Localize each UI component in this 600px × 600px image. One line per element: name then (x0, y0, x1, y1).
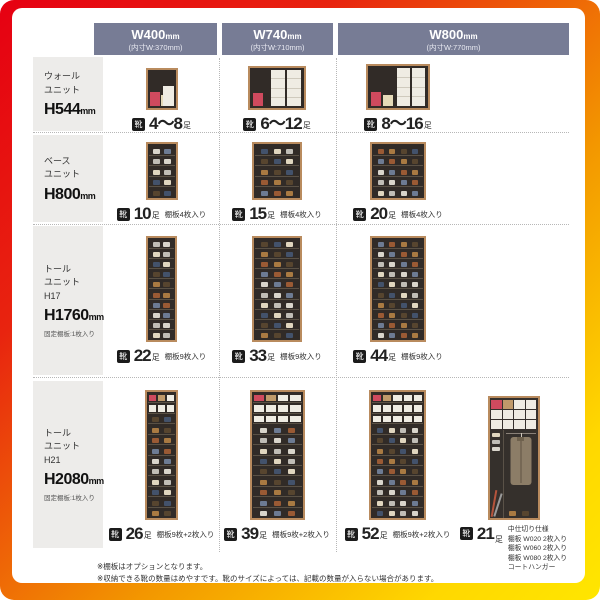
cabinet-image (252, 226, 302, 342)
shoe-pair (153, 282, 160, 287)
shelf-note: 棚板4枚入り (280, 209, 322, 220)
cabinet-wardrobe-unit (488, 396, 540, 520)
shoe-pair (401, 252, 407, 257)
shoe-pair (389, 262, 395, 267)
shoe-pair (389, 449, 395, 454)
shoe-pair (163, 303, 170, 308)
capacity-label: 靴20足棚板4枚入り (353, 205, 443, 222)
capacity-label: 靴39足棚板9枚+2枚入り (224, 525, 330, 542)
wardrobe-main (490, 430, 538, 518)
shoe-pair (163, 252, 170, 257)
capacity-unit: 足 (183, 120, 191, 131)
cabinet-shelf-unit (146, 236, 177, 342)
shoe-pair (412, 282, 418, 287)
shelf-row (148, 497, 175, 507)
shoe-pair (378, 293, 384, 298)
shoe-pair (261, 170, 268, 175)
shoe-box-stack (270, 70, 302, 106)
cabinet-shelf-unit (250, 390, 305, 520)
shoe-pair (288, 449, 295, 454)
shoe-pair (400, 438, 406, 443)
shoe-pair (389, 480, 395, 485)
shoe-pair (389, 313, 395, 318)
shoe-box (412, 88, 425, 98)
shoe-pair (389, 459, 395, 464)
shoe-pair (261, 242, 268, 247)
shoe-pair (274, 469, 281, 474)
capacity-label: 靴4〜8足 (132, 115, 191, 132)
shoe-pair (274, 159, 281, 164)
shelf-note: 棚板9枚+2枚入り (393, 529, 451, 540)
product-comparison-table: ※棚板はオプションとなります。 ※収納できる靴の数量はめやすです。靴のサイズによ… (12, 8, 585, 583)
shoe-pair (286, 191, 293, 196)
shoe-pair (378, 262, 384, 267)
shoe-pair (152, 469, 159, 474)
shoe-pair (153, 262, 160, 267)
shoe-pair (286, 323, 293, 328)
shoe-pair (152, 480, 159, 485)
shoe-pair (412, 159, 418, 164)
shelf-row (253, 403, 302, 413)
shelf-row (149, 259, 174, 269)
shoe-pair (401, 282, 407, 287)
shoe-pair (274, 242, 281, 247)
shoe-box (526, 410, 537, 419)
column-size-line: W400mm (94, 26, 217, 44)
shoe-box (266, 395, 276, 401)
capacity-count: 44 (370, 347, 387, 364)
shoe-pair (378, 313, 384, 318)
shoe-pair (412, 480, 418, 485)
shoe-pair (288, 480, 295, 485)
shoe-pair (412, 180, 418, 185)
shoe-pair (274, 428, 281, 433)
shoe-pair (153, 242, 160, 247)
shoe-pair (274, 333, 281, 338)
shelf-row (253, 497, 302, 507)
shoe-pair (153, 333, 160, 338)
shoe-pair (401, 149, 407, 154)
shoe-icon: 靴 (117, 350, 130, 363)
shoe-pair (152, 438, 159, 443)
shoe-pair (274, 272, 281, 277)
column-size: W400 (131, 27, 165, 42)
shelf-row (148, 435, 175, 445)
shoe-icon: 靴 (132, 118, 145, 131)
shoe-pair (401, 191, 407, 196)
shoe-pair (401, 323, 407, 328)
spec-note-line: 棚板 W080 2枚入り (508, 554, 567, 564)
unit-height-value: H544 (44, 101, 80, 118)
cabinet-image (146, 135, 178, 200)
stored-box (253, 93, 263, 106)
shoe-box (254, 416, 264, 422)
product-cell: 靴6〜12足 (220, 57, 334, 132)
cabinet-shelf-unit (146, 142, 178, 200)
shelf-row (149, 145, 175, 156)
product-cell: 靴22足棚板9枚入り (103, 226, 220, 364)
shoe-pair (274, 511, 281, 516)
product-cell: 靴10足棚板4枚入り (103, 135, 220, 222)
shoe-icon: 靴 (345, 528, 358, 541)
hanging-coat (510, 437, 531, 485)
shoe-box-column (412, 68, 425, 106)
shoe-pair (274, 252, 281, 257)
shoe-pair (377, 490, 383, 495)
shoe-pair (377, 438, 383, 443)
shoe-pair (389, 282, 395, 287)
shoe-pair (163, 313, 170, 318)
shoe-pair (378, 170, 384, 175)
shoe-pair (261, 333, 268, 338)
stored-box (163, 86, 174, 106)
shelf-row (255, 177, 299, 188)
shoe-box-row (491, 399, 537, 409)
shoe-pair (389, 159, 395, 164)
side-shoe-strip (490, 430, 504, 518)
shelf-note: 棚板9枚+2枚入り (157, 529, 215, 540)
shoe-pair (153, 293, 160, 298)
closet-area (504, 430, 538, 518)
shelf-row (373, 166, 423, 177)
shoe-pair (412, 303, 418, 308)
shelf-row (148, 445, 175, 455)
shoe-pair (164, 501, 171, 506)
shoe-pair (286, 262, 293, 267)
shelf-row (373, 249, 423, 259)
shoe-pair (286, 293, 293, 298)
unit-type-label: ユニット (44, 168, 103, 182)
shoe-pair (401, 303, 407, 308)
column-size: W800 (429, 27, 463, 42)
shoe-box-row (491, 419, 537, 429)
shelf-row (372, 445, 423, 455)
shelf-row (373, 289, 423, 299)
shoe-pair (153, 252, 160, 257)
shoe-pair (286, 149, 293, 154)
shelf-row (149, 249, 174, 259)
shoe-pair (401, 272, 407, 277)
capacity-count: 10 (134, 205, 151, 222)
fixed-shelf-note: 固定棚板:1枚入り (44, 328, 103, 338)
shoe-box (383, 405, 391, 411)
shelf-row (255, 249, 299, 259)
shelf-row (148, 476, 175, 486)
unit-height: H544mm (44, 102, 103, 118)
shoe-icon: 靴 (109, 528, 122, 541)
shelf-row (372, 466, 423, 476)
shoe-pair (164, 170, 171, 175)
capacity-label: 靴21足中仕切り仕様棚板 W020 2枚入り棚板 W060 2枚入り棚板 W08… (460, 525, 567, 573)
shoe-pair (389, 501, 395, 506)
shoe-box (414, 405, 422, 411)
shoe-pair (389, 469, 395, 474)
shoe-box (278, 405, 288, 411)
shoe-pair (401, 159, 407, 164)
shoe-box (503, 400, 514, 409)
shelf-note: 棚板4枚入り (401, 209, 443, 220)
shoe-pair (163, 293, 170, 298)
shoe-pair (401, 180, 407, 185)
shoe-icon: 靴 (353, 208, 366, 221)
stored-box (383, 95, 393, 106)
shoe-box-column (271, 70, 285, 106)
shoe-pair (153, 272, 160, 277)
shoe-pair (274, 170, 281, 175)
cabinet-shelf-unit (370, 236, 426, 342)
umbrella-icon (491, 488, 501, 518)
shoe-pair (412, 428, 418, 433)
shelf-row (255, 156, 299, 167)
shoe-icon: 靴 (117, 208, 130, 221)
shoe-pair (377, 428, 383, 433)
shoe-pair (164, 438, 171, 443)
shoe-box (514, 400, 525, 409)
shoe-pair (389, 252, 395, 257)
shelf-row (255, 269, 299, 279)
column-size-line: W740mm (222, 26, 333, 44)
unit-height-unit: mm (89, 476, 104, 486)
unit-height-value: H800 (44, 186, 80, 203)
cabinet-wall-unit (146, 68, 178, 110)
shoe-box (287, 89, 301, 98)
shoe-pair (274, 303, 281, 308)
shoe-box (254, 405, 264, 411)
shoe-pair (389, 170, 395, 175)
capacity-unit: 足 (424, 120, 432, 131)
column-size-line: W800mm (338, 26, 569, 44)
capacity-count: 4〜8 (149, 115, 182, 132)
shoe-pair (412, 242, 418, 247)
shoe-pair (522, 511, 529, 516)
shelf-row (373, 269, 423, 279)
shoe-pair (163, 262, 170, 267)
capacity-label: 靴15足棚板4枚入り (232, 205, 322, 222)
shoe-pair (260, 449, 267, 454)
cabinet-shelf-unit (369, 390, 426, 520)
shelf-row (372, 424, 423, 434)
shoe-icon: 靴 (243, 118, 256, 131)
shoe-box (373, 416, 381, 422)
product-cell: 靴33足棚板9枚入り (220, 226, 334, 364)
product-cell: 靴4〜8足 (103, 57, 220, 132)
shoe-box (278, 395, 288, 401)
shoe-pair (261, 262, 268, 267)
row-divider (33, 224, 569, 225)
shoe-box-column (287, 70, 301, 106)
shelf-row (255, 320, 299, 330)
shoe-pair (389, 272, 395, 277)
shoe-pair (389, 333, 395, 338)
shoe-pair (260, 511, 267, 516)
cabinet-image (488, 381, 540, 520)
stored-box (150, 92, 160, 106)
shoe-pair (274, 293, 281, 298)
capacity-count: 33 (249, 347, 266, 364)
unit-type-label: H21 (44, 454, 103, 468)
shoe-pair (164, 480, 171, 485)
shelf-row (253, 508, 302, 517)
shoe-pair (492, 440, 500, 444)
cabinet-image (146, 226, 177, 342)
unit-type-label: ウォール (44, 70, 103, 84)
shoe-box (149, 405, 156, 411)
shoe-pair (153, 159, 160, 164)
shoe-box (278, 416, 288, 422)
shelf-row (255, 239, 299, 249)
shoe-pair (378, 159, 384, 164)
shelf-row (253, 414, 302, 424)
shoe-pair (286, 242, 293, 247)
shelf-row (149, 300, 174, 310)
shoe-pair (389, 293, 395, 298)
capacity-unit: 足 (380, 530, 388, 541)
cabinet-image (250, 381, 305, 520)
shoe-pair (260, 480, 267, 485)
shoe-pair (153, 303, 160, 308)
shoe-pair (401, 333, 407, 338)
shoe-pair (412, 262, 418, 267)
shoe-pair (260, 501, 267, 506)
shoe-pair (378, 242, 384, 247)
shoe-pair (153, 313, 160, 318)
shoe-pair (288, 511, 295, 516)
cabinet-image (370, 135, 426, 200)
shoe-pair (412, 459, 418, 464)
capacity-label: 靴6〜12足 (243, 115, 310, 132)
spec-notes: 中仕切り仕様棚板 W020 2枚入り棚板 W060 2枚入り棚板 W080 2枚… (508, 525, 567, 573)
shoe-pair (412, 252, 418, 257)
shoe-box (290, 416, 300, 422)
shoe-box (414, 416, 422, 422)
shelf-row (373, 310, 423, 320)
shoe-box (373, 395, 381, 401)
shoe-pair (412, 293, 418, 298)
shelf-row (255, 187, 299, 197)
shoe-pair (412, 511, 418, 516)
shoe-box (404, 416, 412, 422)
shoe-pair (286, 180, 293, 185)
shoe-pair (389, 511, 395, 516)
shoe-pair (261, 191, 268, 196)
shoe-pair (153, 149, 160, 154)
product-cell: 靴52足棚板9枚+2枚入り (340, 381, 455, 542)
shelf-row (373, 259, 423, 269)
shoe-pair (163, 323, 170, 328)
shoe-pair (400, 449, 406, 454)
capacity-unit: 足 (303, 120, 311, 131)
column-size: W740 (253, 27, 287, 42)
shoe-pair (400, 480, 406, 485)
shoe-pair (164, 469, 171, 474)
shoe-pair (389, 242, 395, 247)
shoe-pair (412, 272, 418, 277)
shelf-row (148, 487, 175, 497)
shoe-pair (261, 303, 268, 308)
shelf-row (255, 166, 299, 177)
shoe-pair (286, 313, 293, 318)
shoe-pair (378, 333, 384, 338)
shoe-pair (286, 303, 293, 308)
product-cell: 靴21足中仕切り仕様棚板 W020 2枚入り棚板 W060 2枚入り棚板 W08… (458, 381, 569, 573)
capacity-count: 22 (134, 347, 151, 364)
cabinet-image (248, 57, 306, 110)
shoe-pair (377, 480, 383, 485)
shoe-box (404, 395, 412, 401)
shoe-pair (164, 449, 171, 454)
shoe-pair (152, 417, 159, 422)
shoe-pair (412, 469, 418, 474)
shoe-pair (153, 180, 160, 185)
shoe-box-stack (396, 68, 426, 106)
cabinet-shelf-unit (145, 390, 178, 520)
shoe-pair (163, 333, 170, 338)
shoe-pair (274, 282, 281, 287)
shoe-pair (412, 323, 418, 328)
shelf-row (149, 279, 174, 289)
capacity-count: 21 (477, 525, 494, 542)
shelf-row (149, 310, 174, 320)
shelf-row (373, 177, 423, 188)
shoe-pair (274, 449, 281, 454)
shoe-pair (261, 180, 268, 185)
shelf-row (149, 156, 175, 167)
shelf-row (149, 187, 175, 197)
shoe-pair (412, 449, 418, 454)
unit-type-label: ベース (44, 155, 103, 169)
shoe-pair (288, 490, 295, 495)
shelf-row (148, 403, 175, 413)
shoe-pair (261, 149, 268, 154)
shelf-row (255, 310, 299, 320)
shoe-box (158, 395, 165, 401)
shoe-pair (378, 252, 384, 257)
shoe-pair (152, 459, 159, 464)
shoe-pair (492, 447, 500, 451)
shelf-row (149, 269, 174, 279)
shelf-row (255, 259, 299, 269)
shoe-box (254, 395, 264, 401)
shoe-pair (400, 501, 406, 506)
shoe-pair (412, 490, 418, 495)
shoe-box (491, 400, 502, 409)
shoe-pair (153, 170, 160, 175)
shoe-pair (400, 511, 406, 516)
shelf-row (373, 145, 423, 156)
shoe-pair (288, 469, 295, 474)
cabinet-wall-unit (366, 64, 430, 110)
shelf-row (253, 424, 302, 434)
shoe-pair (389, 438, 395, 443)
capacity-label: 靴26足棚板9枚+2枚入り (109, 525, 215, 542)
shoe-box (149, 395, 156, 401)
shelf-row (149, 289, 174, 299)
shoe-pair (377, 469, 383, 474)
shoe-pair (274, 313, 281, 318)
footnote-1: ※棚板はオプションとなります。 (97, 561, 207, 572)
spec-note-line: コートハンガー (508, 563, 567, 573)
shelf-row (253, 476, 302, 486)
shoe-box (271, 89, 285, 98)
shoe-box (404, 405, 412, 411)
shoe-pair (400, 459, 406, 464)
shoe-box (287, 70, 301, 79)
shoe-box (167, 395, 174, 401)
shoe-icon: 靴 (460, 527, 473, 540)
column-header-w740: W740mm(内寸W:710mm) (222, 23, 333, 55)
shelf-row (255, 279, 299, 289)
shoe-box (526, 420, 537, 429)
